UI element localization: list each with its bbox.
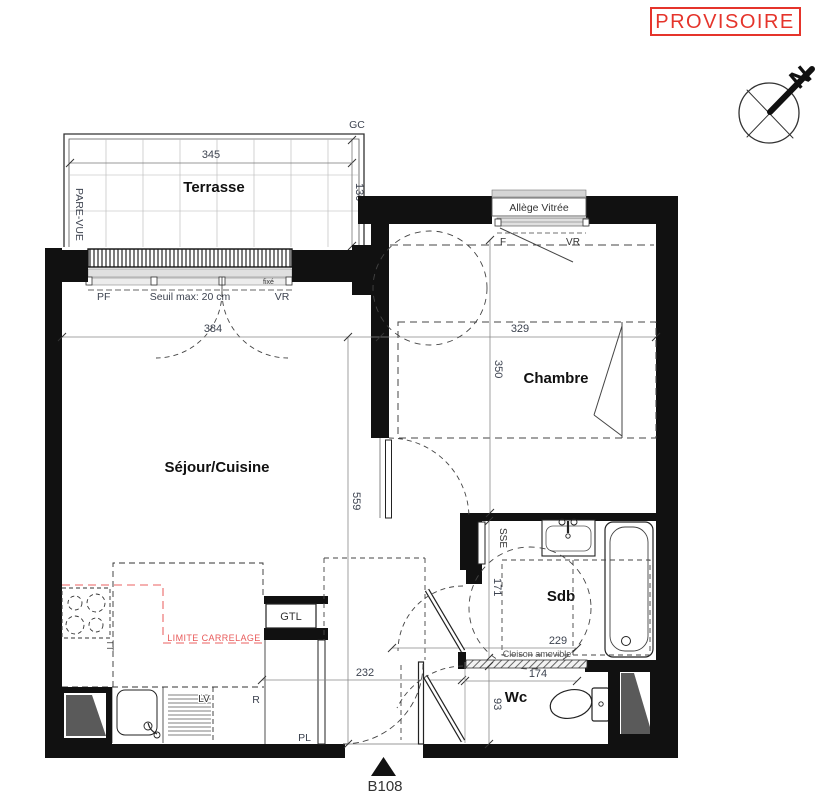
wall-north-left — [358, 196, 492, 224]
closet-label: PL — [298, 732, 311, 744]
floor-plan-drawing: PROVISOIRE N 345 Terrasse GC PARE-VUE — [0, 0, 839, 800]
wall-window-jamb-right — [292, 250, 352, 282]
kitchen-sink-symbol — [117, 690, 160, 738]
washbasin-symbol — [542, 519, 595, 556]
dim-93: 93 — [491, 698, 503, 710]
bathtub-symbol — [605, 522, 653, 657]
tile-limit-label: LIMITE CARRELAGE — [167, 633, 260, 643]
shaft-southeast — [608, 660, 658, 744]
dim-350: 350 — [492, 360, 504, 378]
movable-partition-label: Cloison amovible — [503, 649, 572, 659]
bathroom-label: Sdb — [547, 588, 575, 605]
threshold-note: Seuil max: 20 cm — [150, 291, 231, 303]
dim-229: 229 — [549, 635, 567, 647]
dim-174: 174 — [529, 668, 547, 680]
bedroom-window-sill — [492, 190, 586, 197]
wall-bathroom-west-step — [466, 570, 482, 584]
dim-384: 384 — [204, 323, 222, 335]
wall-south-right — [423, 744, 678, 758]
bedroom-label: Chambre — [523, 370, 588, 387]
glazed-sill-label: Allège Vitrée — [509, 202, 569, 214]
bedroom-window-vr-label: VR — [566, 237, 580, 248]
wall-corner-block — [352, 245, 371, 295]
wc-label: Wc — [505, 689, 528, 706]
wall-partition-cap-right — [585, 660, 608, 672]
dim-171: 171 — [491, 578, 503, 596]
balcony-guardrail — [88, 249, 292, 267]
window-sill-outer — [88, 269, 292, 277]
terrace-label: Terrasse — [183, 179, 244, 196]
pf-label: PF — [97, 291, 110, 303]
gtl-label: GTL — [280, 611, 301, 623]
movable-partition-symbol — [466, 660, 587, 668]
living-label: Séjour/Cuisine — [164, 459, 269, 476]
wall-window-jamb-left — [62, 250, 88, 282]
towel-dryer-label: SSE — [497, 528, 508, 548]
wall-west — [45, 248, 62, 758]
vr-label: VR — [275, 291, 290, 303]
bedroom-window-frame-right — [583, 219, 589, 226]
fixed-pane-label: fixé — [263, 279, 274, 286]
window-sill-inner — [88, 278, 292, 285]
bedroom-window-frame-left — [495, 219, 501, 226]
tt-label: TT — [105, 640, 115, 651]
wall-gtl-top — [264, 596, 328, 604]
wall-east — [656, 196, 678, 758]
bedroom-door-leaf — [386, 440, 392, 518]
dim-559: 559 — [350, 492, 362, 510]
dishwasher-label: LV — [198, 694, 210, 705]
closet-front-wall — [318, 640, 325, 744]
stamp-label: PROVISOIRE — [655, 11, 794, 33]
pare-vue-label: PARE-VUE — [73, 188, 85, 241]
wall-north-right — [586, 196, 656, 224]
wall-gtl-bottom — [264, 628, 328, 640]
wall-bedroom-partition — [371, 224, 389, 438]
wall-south-left — [45, 744, 345, 758]
floor-plan-sheet: PROVISOIRE N 345 Terrasse GC PARE-VUE — [0, 0, 839, 800]
provisional-stamp: PROVISOIRE — [651, 8, 800, 35]
towel-dryer-symbol — [478, 522, 485, 564]
dim-329: 329 — [511, 323, 529, 335]
shaft-southwest — [58, 687, 112, 744]
dim-345: 345 — [202, 149, 220, 161]
unit-number: B108 — [367, 778, 402, 795]
gc-label: GC — [349, 119, 365, 131]
dim-232: 232 — [356, 667, 374, 679]
fridge-label: R — [252, 694, 260, 706]
bedroom-window-f-label: F — [500, 237, 506, 248]
